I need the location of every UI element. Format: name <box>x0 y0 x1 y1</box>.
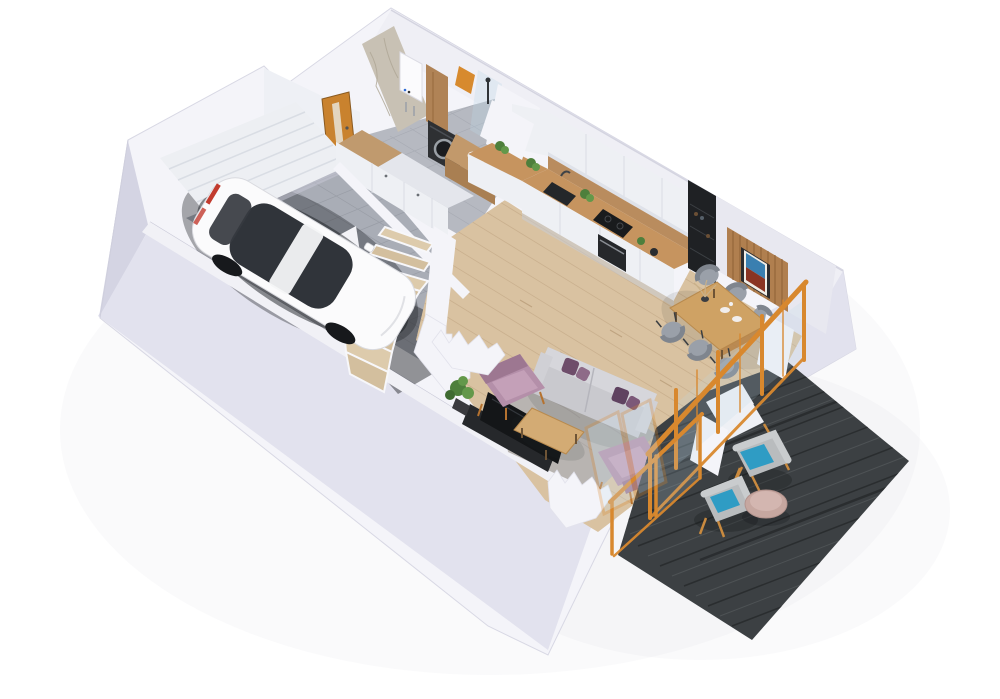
door-handle-icon <box>345 126 348 129</box>
round-side-table <box>742 490 790 526</box>
floorplan-render <box>0 0 1000 699</box>
